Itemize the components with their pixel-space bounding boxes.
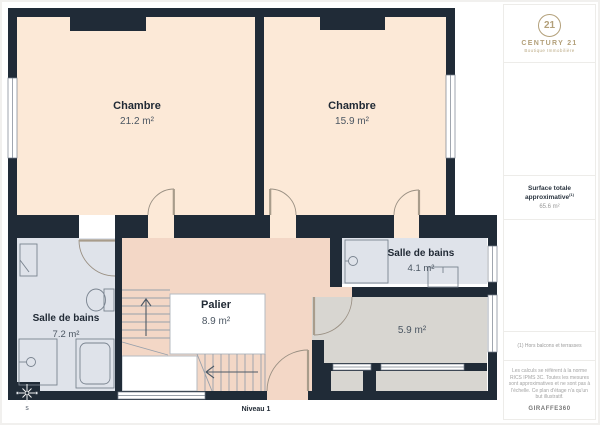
- window-left: [8, 78, 17, 158]
- legal-box: Les calculs se réfèrent à la norme RICS …: [504, 361, 595, 419]
- bedroom1-area: 21.2 m²: [120, 116, 155, 127]
- century21-logo: 21 CENTURY 21 Boutique Immobilière: [504, 5, 595, 63]
- chimney-notch-2: [320, 17, 385, 30]
- brand-tagline: Boutique Immobilière: [524, 48, 574, 53]
- surface-superscript: (1): [569, 192, 574, 197]
- surface-total-box: Surface totale approximative(1) 65.6 m²: [504, 176, 595, 220]
- level-label: Niveau 1: [228, 406, 284, 413]
- bathroom2-floor: [342, 238, 487, 284]
- surface-total-label-text: Surface totale approximative: [525, 185, 571, 201]
- floor-plan-svg: S Chambre 21.2 m² Chambre 15.9 m² Salle …: [0, 0, 500, 425]
- window-room59-bottom-a: [333, 364, 371, 370]
- landing-area: 8.9 m²: [202, 316, 231, 327]
- disclaimer-text: Les calculs se réfèrent à la norme RICS …: [508, 368, 591, 401]
- brand-name: CENTURY 21: [521, 40, 577, 47]
- balcony-strip: [324, 371, 487, 391]
- footnote-box: (1) Hors balcons et terrasses: [504, 332, 595, 361]
- surface-total-label: Surface totale approximative(1): [504, 185, 595, 201]
- sidebar-spacer: [504, 63, 595, 176]
- sidebar-spacer: [504, 220, 595, 332]
- window-bottom-left: [118, 392, 205, 399]
- chimney-notch-1: [70, 17, 146, 31]
- room59-area: 5.9 m²: [398, 325, 427, 336]
- footnote-text: (1) Hors balcons et terrasses: [513, 343, 585, 349]
- window-right-top: [446, 75, 455, 158]
- century21-ring-icon: 21: [538, 14, 561, 37]
- info-sidebar: 21 CENTURY 21 Boutique Immobilière Surfa…: [503, 4, 596, 420]
- bedroom2-area: 15.9 m²: [335, 116, 370, 127]
- window-room59-bottom-b: [381, 364, 464, 370]
- bathroom2-area: 4.1 m²: [408, 263, 435, 274]
- landing-floor: [122, 238, 330, 287]
- compass-letter: S: [25, 406, 29, 412]
- window-room59-right: [488, 295, 497, 352]
- bedroom2-name: Chambre: [328, 100, 376, 112]
- bedroom1-name: Chambre: [113, 100, 161, 112]
- provider-logo: GIRAFFE360: [528, 406, 570, 412]
- bathroom1-area: 7.2 m²: [53, 329, 80, 340]
- floor-plan: S Chambre 21.2 m² Chambre 15.9 m² Salle …: [0, 0, 500, 425]
- window-bathroom2: [488, 246, 497, 282]
- bathroom2-name: Salle de bains: [388, 248, 455, 259]
- landing-name: Palier: [201, 299, 232, 311]
- surface-total-value: 65.6 m²: [539, 204, 559, 210]
- bathroom1-name: Salle de bains: [33, 313, 100, 324]
